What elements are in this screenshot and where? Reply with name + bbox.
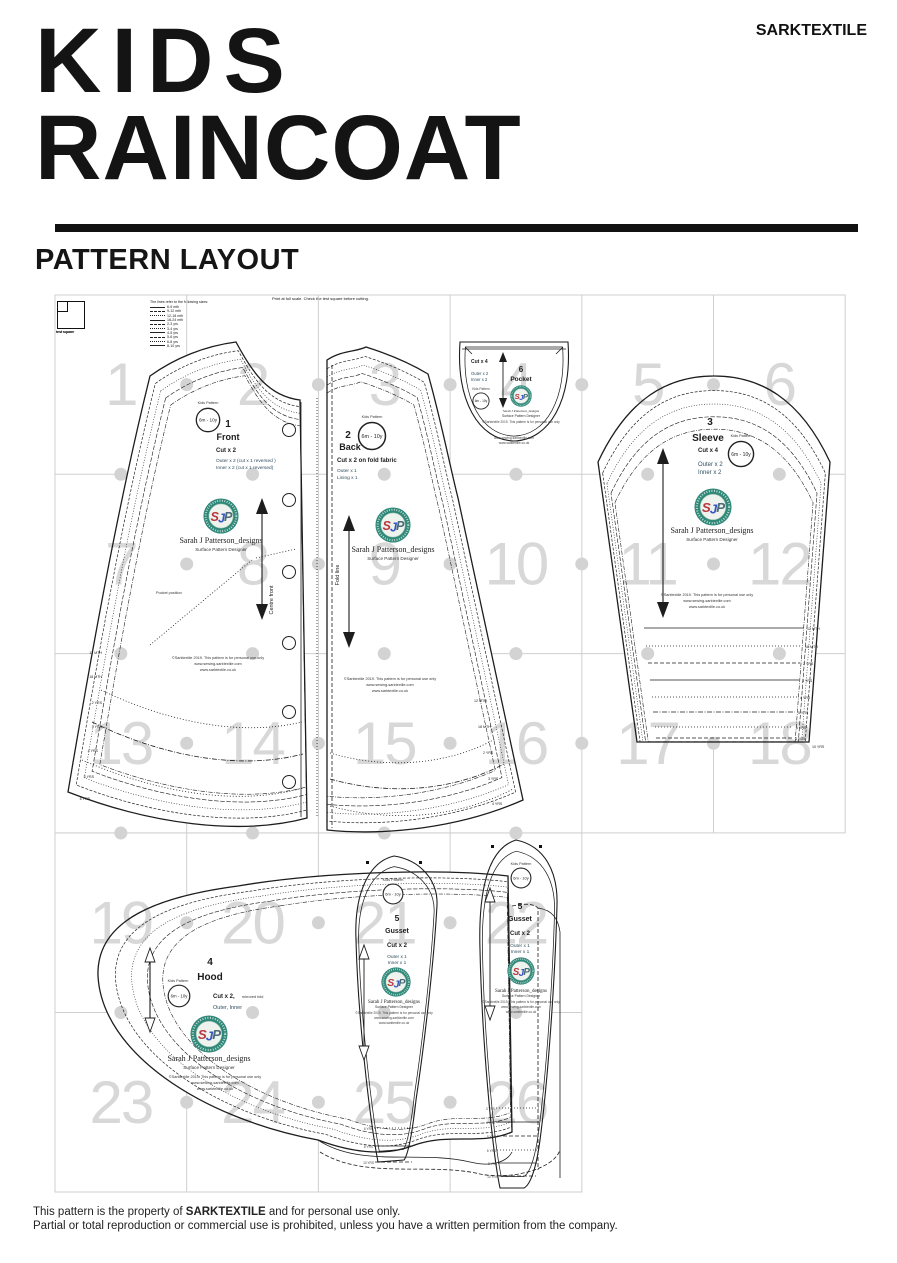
alignment-dot [246,827,259,840]
alignment-dot [509,827,522,840]
back-spec1: Outer x 1 [337,468,357,474]
back-stamp [359,423,386,450]
back-hem-label: 4 YRS [492,802,503,806]
back-cut: Cut x 2 on fold fabric [337,458,397,464]
gusset1-stamp [383,884,403,904]
pocket-bottom-copy-2: www.sarktextile.co.uk [499,441,530,445]
hood-designer-sub: Surface Pattern Designer [183,1065,235,1070]
front-number: 1 [225,419,231,430]
gusset2-hem-label: 3 YRS [486,1107,495,1111]
hood-designer: Sarah J Patterson_designs [167,1054,250,1063]
front-hem-label: 2 YRS [92,701,103,705]
hood-name: Hood [197,972,223,983]
sleeve-spec2: Inner x 2 [698,470,722,476]
alignment-dot [444,737,457,750]
page-number: 23 [89,1069,152,1136]
gusset2-number: 5 [518,901,523,911]
alignment-dot [378,468,391,481]
gusset1-hem-label: 6 YRS [364,1127,373,1131]
alignment-dot [114,647,127,660]
alignment-dot [444,557,457,570]
gusset2-copyright-1: ©Sarktextile 2019. This pattern is for p… [482,1000,560,1004]
pocket-number: 6 [519,365,524,374]
pattern-layout-canvas: SJP 6m - 10y 123456789101112131415161718… [0,0,897,1263]
front-sjp-logo [203,498,238,533]
alignment-dot [180,737,193,750]
page-number: 1 [105,351,136,418]
alignment-dot [575,737,588,750]
gusset1-copyright-2: www.sewing-sarktextile.com [374,1016,414,1020]
pocket-stamp-label: Kids Pattern [472,387,490,391]
gusset1-cut: Cut x 2 [387,943,408,949]
hood-copyright-1: ©Sarktextile 2019. This pattern is for p… [169,1075,261,1079]
back-designer-sub: Surface Pattern Designer [367,556,419,561]
alignment-dot [773,647,786,660]
alignment-dot [180,378,193,391]
hood-stamp-label: Kids Pattern [168,979,189,983]
front-copyright-2: www.sewing-sarktextile.com [194,662,241,666]
gusset2-designer-sub: Surface Pattern Designer [502,994,541,998]
sleeve-hem-label: 12 MTH [807,627,820,631]
page-number: 5 [632,351,663,418]
gusset2-stamp [511,868,531,888]
alignment-dot [114,1006,127,1019]
pocket-copyright-1: ©Sarktextile 2019. This pattern is for p… [482,420,560,424]
front-hem-label: 3 YRS [92,725,103,729]
gusset1-name: Gusset [385,928,409,935]
back-stamp-label: Kids Pattern [362,415,383,419]
alignment-dot [707,557,720,570]
alignment-dot [312,557,325,570]
sleeve-hem-label: 2 YRS [803,662,814,666]
alignment-dot [707,378,720,391]
front-grain-label: Centre front [269,585,275,615]
alignment-dot [707,737,720,750]
front-spec2: Inner x 2 (cut x 1 reversed) [216,465,274,471]
front-cut: Cut x 2 [216,448,237,454]
footer-line-2: Partial or total reproduction or commerc… [33,1220,618,1234]
back-hem-label: 18 MTH [478,725,491,729]
alignment-dot [444,378,457,391]
front-hem-label: 4 YRS [88,749,99,753]
alignment-dot [312,1096,325,1109]
sleeve-stamp [728,441,753,466]
page-number: 6 [764,351,795,418]
hood-sjp-logo [190,1015,227,1052]
footer-line-1: This pattern is the property of SARKTEXT… [33,1206,618,1220]
gusset2-cut: Cut x 2 [510,931,531,937]
page-number: 10 [485,530,548,597]
front-name: Front [217,432,240,442]
alignment-dot [312,737,325,750]
alignment-dot [509,647,522,660]
front-hem-label: 6 YRS [80,797,91,801]
pocket-designer-sub: Surface Pattern Designer [502,414,541,418]
sleeve-hem-label: 4 YRS [800,696,811,700]
gusset2-hem-label: 8 YRS [488,1162,497,1166]
alignment-dot [575,557,588,570]
pocket-sjp-logo [510,385,531,406]
sleeve-copyright-1: ©Sarktextile 2019. This pattern is for p… [661,593,753,597]
back-designer: Sarah J Patterson_designs [351,545,434,554]
sleeve-hem-label: 8 YRS [795,737,806,741]
sleeve-designer: Sarah J Patterson_designs [670,526,753,535]
page-number: 20 [221,889,284,956]
sleeve-name: Sleeve [692,433,724,444]
sleeve-designer-sub: Surface Pattern Designer [686,537,738,542]
back-hem-label: 2 YRS [483,751,494,755]
gusset1-copyright-1: ©Sarktextile 2019. This pattern is for p… [355,1011,433,1015]
gusset2-hem-label: 10 YRS [487,1175,498,1179]
gusset2-hem-label: 6 YRS [487,1149,496,1153]
front-stamp-label: Kids Pattern [198,401,219,405]
hood-spec1: Outer, Inner [213,1005,242,1011]
hood-cut: Cut x 2, [213,994,235,1000]
sleeve-copyright-2: www.sewing-sarktextile.com [683,599,730,603]
gusset1-spec1: Outer x 1 [387,954,407,960]
pocket-spec2: Inner x 2 [471,377,488,382]
sleeve-hem-label: 18 MTH [805,645,818,649]
gusset2-copyright-2: www.sewing-sarktextile.com [501,1005,541,1009]
page-number: 11 [619,530,677,597]
page-number: 15 [353,710,416,777]
gusset1-number: 5 [395,913,400,923]
back-sjp-logo [375,507,410,542]
gusset2-name: Gusset [508,916,532,923]
pocket-stamp [473,393,489,409]
alignment-dot [312,378,325,391]
footer-brand: SARKTEXTILE [186,1206,266,1218]
back-copyright-1: ©Sarktextile 2019. This pattern is for p… [344,677,436,681]
alignment-dot [444,916,457,929]
back-copyright-3: www.sarktextile.co.uk [372,689,408,693]
gusset2-spec2: Inner x 1 [511,949,530,955]
alignment-dot [180,1096,193,1109]
gusset2-sjp-logo [507,957,534,984]
alignment-dot [180,557,193,570]
sleeve-copyright-3: www.sarktextile.co.uk [689,605,725,609]
page-number: 12 [748,530,811,597]
back-name: Back [339,442,362,452]
sleeve-hem-label: 6 YRS [796,726,807,730]
front-spec1: Outer x 2 (cut x 1 reversed ) [216,458,276,464]
alignment-dot [378,647,391,660]
page-number: 18 [748,710,811,777]
page-number: 14 [221,710,284,777]
sleeve-hem-label: 5 YRS [798,711,809,715]
sleeve-hem-label: 3 YRS [802,679,813,683]
alignment-dot [246,1006,259,1019]
pocket-spec1: Outer x 2 [471,371,489,376]
sleeve-sjp-logo [694,488,731,525]
front-hem-label: 5 YRS [84,775,95,779]
alignment-dot [180,916,193,929]
gusset1-hem-label: 10 YRS [363,1161,374,1165]
page-number: 3 [369,351,400,418]
hood-copyright-2: www.sewing-sarktextile.com [191,1081,238,1085]
sleeve-cut: Cut x 4 [698,448,719,454]
page-number: 25 [353,1069,416,1136]
sleeve-hem-label: 10 YRS [812,745,825,749]
alignment-dot [509,468,522,481]
gusset2-stamp-label: Kids Pattern [511,862,532,866]
sleeve-spec1: Outer x 2 [698,462,723,468]
front-designer: Sarah J Patterson_designs [179,536,262,545]
gusset1-designer-sub: Surface Pattern Designer [375,1005,414,1009]
back-hem-label: 3 YRS [488,777,499,781]
back-hem-label: 12 MTH [474,699,487,703]
alignment-dot [444,1096,457,1109]
pocket-bottom-copy-1: www.sewing-sarktextile.com [494,436,534,440]
hood-copyright-3: www.sarktextile.co.uk [197,1087,233,1091]
alignment-dot [641,647,654,660]
alignment-dot [312,916,325,929]
gusset1-hem-label: 8 YRS [364,1145,373,1149]
gusset1-stamp-label: Kids Pattern [383,878,404,882]
back-copyright-2: www.sewing-sarktextile.com [366,683,413,687]
pattern-sheet-page: KIDS RAINCOAT SARKTEXTILE PATTERN LAYOUT… [0,0,897,1263]
pocket-name: Pocket [510,376,532,383]
gusset2-hem-label: 5 YRS [487,1135,496,1139]
alignment-dot [773,468,786,481]
page-number: 7 [105,530,136,597]
front-copyright-1: ©Sarktextile 2019. This pattern is for p… [172,656,264,660]
hood-number: 4 [207,957,213,968]
page-number: 19 [89,889,152,956]
back-number: 2 [345,430,351,441]
gusset1-sjp-logo [381,967,410,996]
hood-cut-note: mirrored fold [242,995,263,999]
front-pocket-note: Pocket position [156,591,182,595]
pocket-designer: Sarah J Patterson_designs [503,409,540,413]
gusset1-copyright-3: www.sarktextile.co.uk [379,1021,410,1025]
gusset2-copyright-3: www.sarktextile.co.uk [506,1010,537,1014]
alignment-dot [641,468,654,481]
front-copyright-3: www.sarktextile.co.uk [200,668,236,672]
front-designer-sub: Surface Pattern Designer [195,547,247,552]
gusset2-spec1: Outer x 1 [510,943,530,949]
pocket-cut: Cut x 4 [471,359,488,365]
front-stamp [196,408,219,431]
footer-notice: This pattern is the property of SARKTEXT… [33,1206,618,1233]
back-fold-label: Fold line [335,565,341,586]
front-hem-label: 12 MTH [89,651,102,655]
alignment-dot [114,827,127,840]
front-hem-label: 18 MTH [89,675,102,679]
alignment-dot [575,378,588,391]
back-spec2: Lining x 1 [337,475,358,481]
hood-stamp [168,985,190,1007]
sleeve-stamp-label: Kids Pattern [731,434,752,438]
alignment-dot [378,827,391,840]
sleeve-number: 3 [707,417,713,428]
alignment-dot [114,468,127,481]
gusset1-spec2: Inner x 1 [388,960,407,966]
page-number: 17 [616,710,679,777]
gusset2-hem-label: 4 YRS [486,1121,495,1125]
